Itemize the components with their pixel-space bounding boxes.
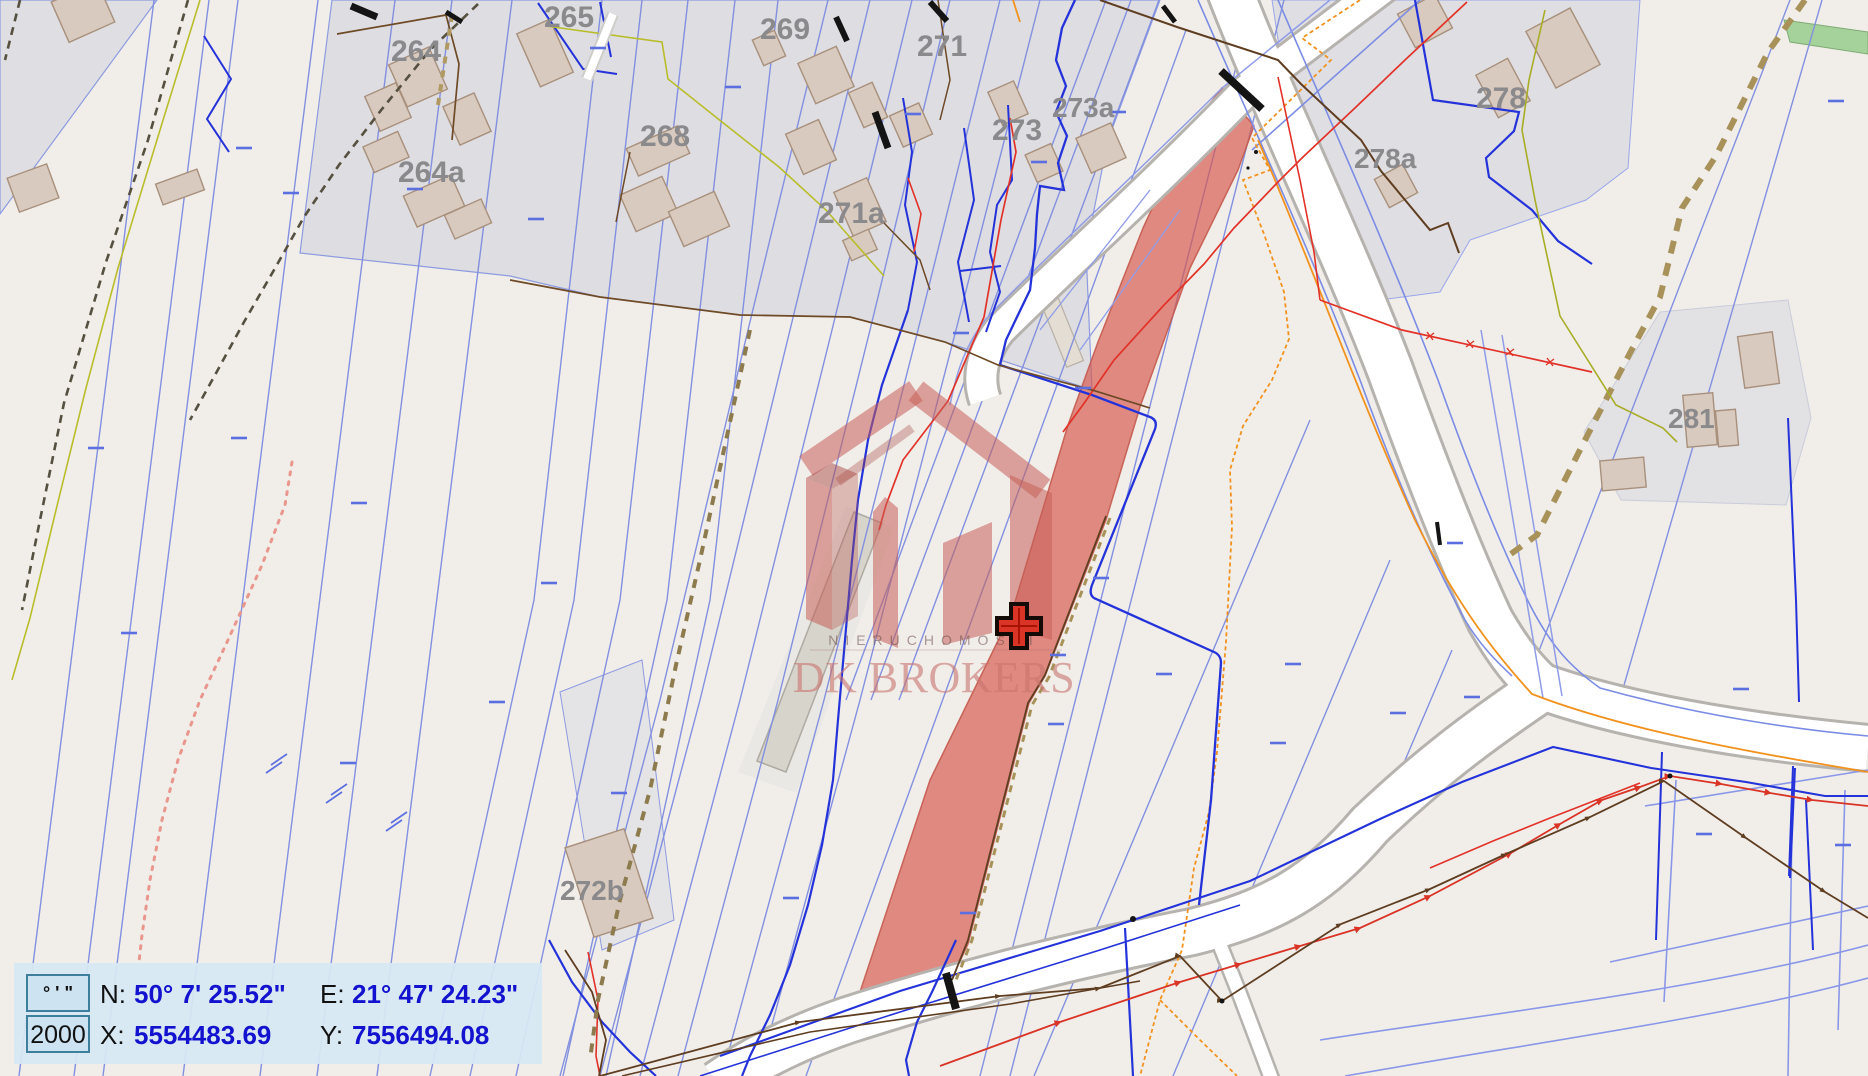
svg-text:278a: 278a [1354,143,1417,174]
svg-text:DK BROKERS: DK BROKERS [793,653,1076,702]
svg-text:278: 278 [1476,82,1526,115]
svg-text:N:: N: [100,979,126,1009]
svg-text:265: 265 [544,1,594,34]
svg-text:X:: X: [100,1020,125,1050]
svg-text:Y:: Y: [320,1020,343,1050]
svg-text:264a: 264a [398,156,465,189]
svg-text:2000: 2000 [30,1021,86,1049]
svg-text:° ' ": ° ' " [43,983,73,1003]
svg-text:50° 7' 25.52": 50° 7' 25.52" [134,979,286,1009]
svg-text:5554483.69: 5554483.69 [134,1020,271,1050]
svg-text:273a: 273a [1052,92,1115,123]
svg-text:264: 264 [391,35,441,68]
svg-text:268: 268 [640,120,690,153]
svg-text:271a: 271a [818,197,885,230]
svg-text:271: 271 [917,30,967,63]
svg-text:E:: E: [320,979,345,1009]
svg-text:21° 47' 24.23": 21° 47' 24.23" [352,979,518,1009]
svg-text:272b: 272b [560,875,624,906]
svg-text:7556494.08: 7556494.08 [352,1020,489,1050]
svg-text:269: 269 [760,13,810,46]
svg-text:281: 281 [1668,403,1715,434]
svg-text:273: 273 [992,114,1042,147]
